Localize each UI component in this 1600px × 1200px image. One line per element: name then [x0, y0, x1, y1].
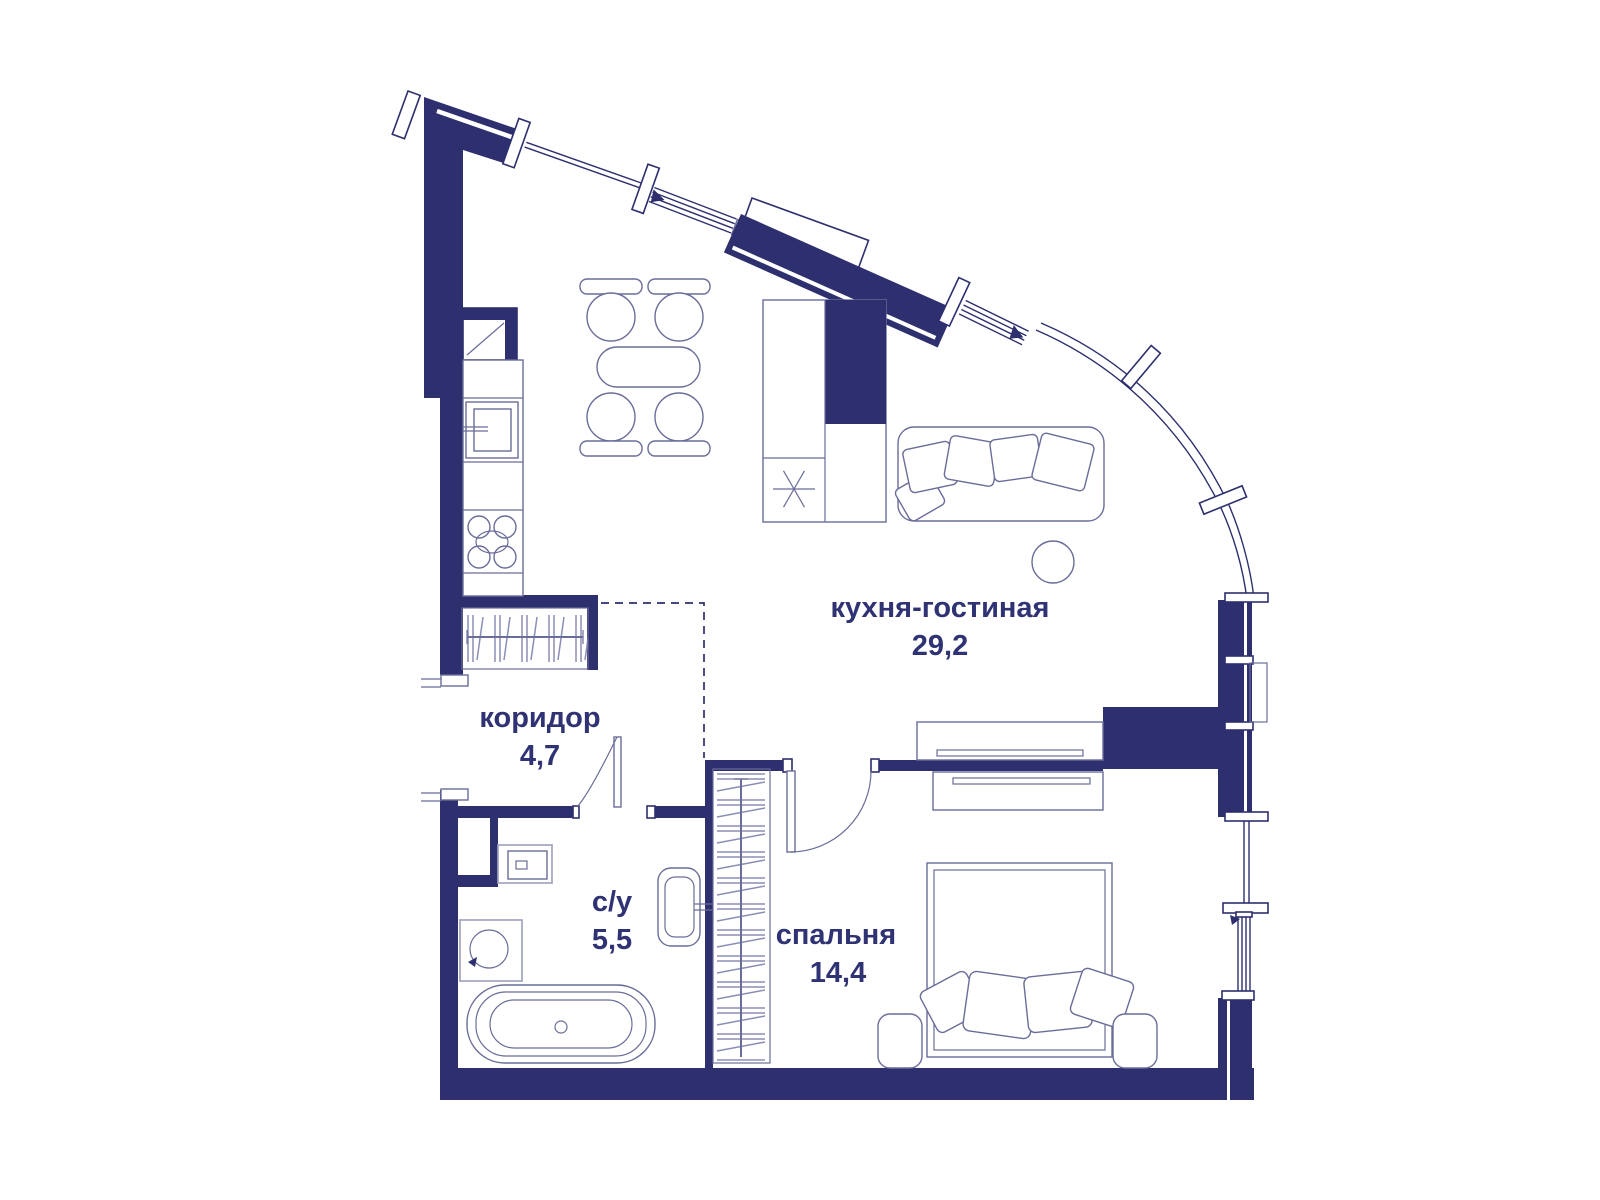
kitchen-cabinet-unit [763, 300, 886, 522]
entrance-door [421, 675, 468, 801]
kitchen-sink [463, 402, 518, 458]
coat-closet [462, 608, 588, 669]
sideboard-bedroom [933, 772, 1103, 810]
corridor-door [577, 737, 621, 807]
wardrobe [713, 769, 770, 1063]
washbasin [498, 845, 552, 883]
dining-table [597, 347, 700, 387]
facade-mullion-1 [939, 278, 970, 327]
bottom-wall [440, 1068, 1254, 1100]
toilet [658, 868, 712, 946]
side-table [1032, 541, 1074, 583]
washing-machine [460, 920, 522, 981]
floor-plan-drawing: кухня-гостиная 29,2 коридор 4,7 с/у 5,5 … [0, 0, 1600, 1200]
chair [648, 441, 710, 456]
bedroom-corner-wall [1103, 707, 1219, 769]
nightstand-left [878, 1014, 922, 1068]
room-area-kitchen-living: 29,2 [912, 630, 968, 662]
facade-window-left [503, 118, 659, 213]
chair [580, 441, 642, 456]
bathtub [467, 985, 655, 1063]
floor-plan: кухня-гостиная 29,2 коридор 4,7 с/у 5,5 … [0, 0, 1600, 1200]
room-area-corridor: 4,7 [520, 740, 560, 772]
bedroom-window [1222, 912, 1254, 1000]
chair [580, 279, 642, 294]
zone-boundary-dashed [601, 603, 704, 758]
sofa [894, 427, 1104, 523]
bedroom-door [787, 771, 871, 852]
room-label-bedroom: спальня [776, 919, 896, 951]
nightstand-right [1113, 1014, 1157, 1068]
room-label-bathroom: с/у [592, 886, 632, 918]
bathroom-niche-wall-bottom [458, 875, 498, 887]
room-label-kitchen-living: кухня-гостиная [831, 592, 1050, 624]
room-label-corridor: коридор [479, 702, 600, 734]
right-wall-lower [1218, 998, 1252, 1100]
facade-window-right [959, 301, 1028, 345]
vent-shaft [463, 308, 517, 360]
chair [648, 279, 710, 294]
sideboard-living [917, 722, 1103, 760]
room-area-bedroom: 14,4 [810, 957, 866, 989]
bedroom-glass-segment [1223, 821, 1268, 913]
corner-window [392, 91, 420, 139]
dining-set [580, 279, 710, 456]
bed [918, 863, 1135, 1057]
radiator [1250, 663, 1267, 722]
room-area-bathroom: 5,5 [592, 924, 632, 956]
